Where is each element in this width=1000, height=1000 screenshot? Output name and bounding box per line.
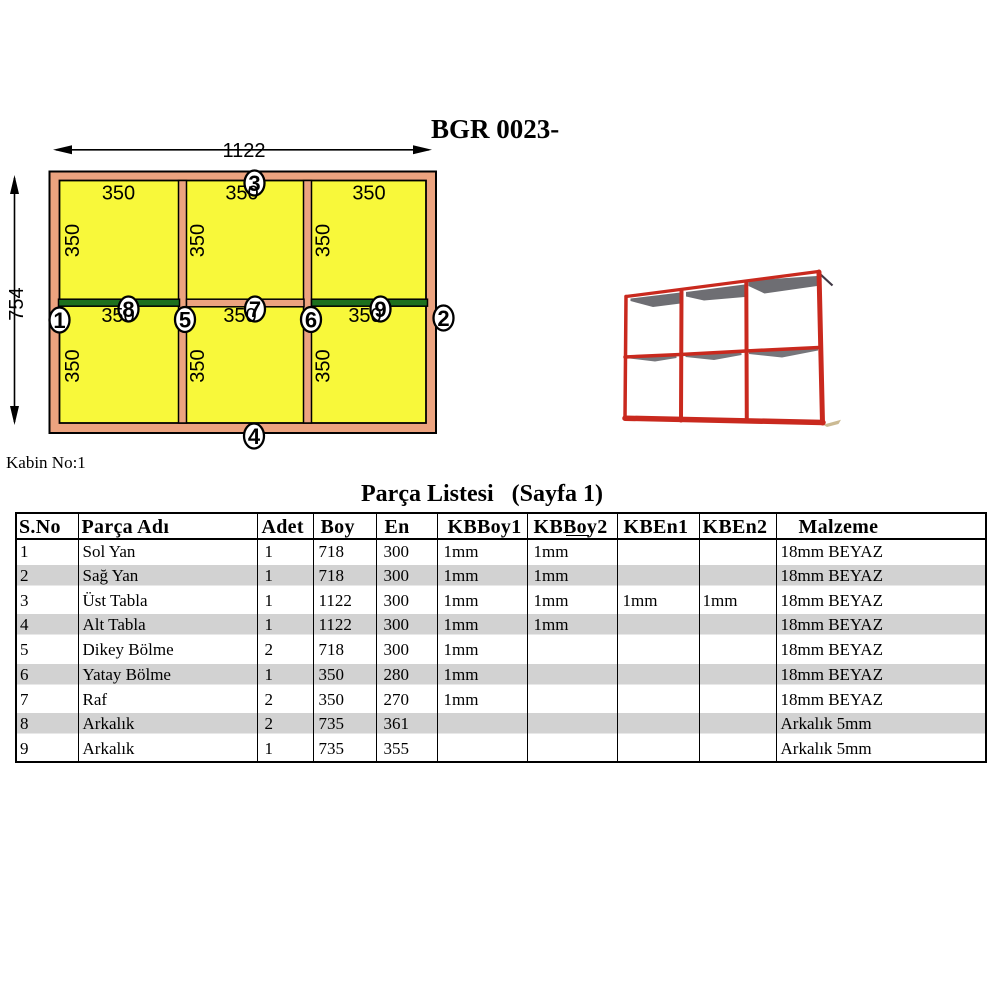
svg-text:350: 350 — [62, 224, 84, 257]
svg-text:350: 350 — [102, 183, 135, 205]
svg-text:1122: 1122 — [222, 140, 265, 162]
svg-text:350: 350 — [187, 349, 209, 382]
svg-text:350: 350 — [62, 349, 84, 382]
svg-text:350: 350 — [101, 305, 134, 327]
svg-text:2: 2 — [437, 306, 449, 331]
svg-text:5: 5 — [179, 308, 191, 333]
svg-text:6: 6 — [305, 308, 317, 333]
svg-text:754: 754 — [6, 287, 28, 320]
svg-text:4: 4 — [248, 424, 261, 449]
svg-text:1: 1 — [53, 308, 65, 333]
svg-text:350: 350 — [348, 305, 381, 327]
svg-text:350: 350 — [223, 305, 256, 327]
svg-text:350: 350 — [352, 183, 385, 205]
svg-text:350: 350 — [313, 224, 335, 257]
svg-text:350: 350 — [187, 224, 209, 257]
svg-text:350: 350 — [313, 349, 335, 382]
svg-text:350: 350 — [225, 183, 258, 205]
